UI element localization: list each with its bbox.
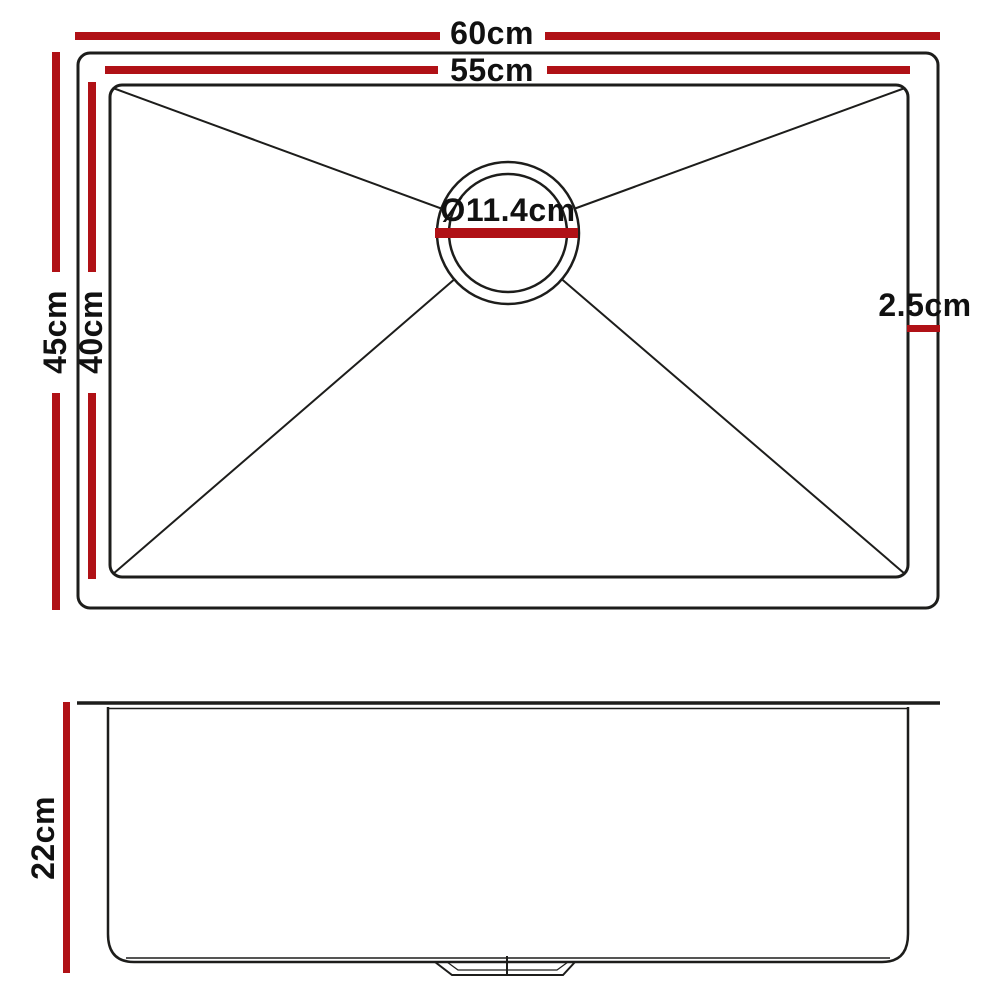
dimension-bar-45cm-bottom bbox=[52, 393, 60, 610]
dimension-label-outer-width: 60cm bbox=[450, 17, 534, 49]
sink-body-profile bbox=[108, 707, 908, 962]
dimension-bar-45cm-top bbox=[52, 52, 60, 272]
sink-inner-bowl bbox=[110, 85, 908, 577]
diagram-lineart bbox=[0, 0, 1000, 1000]
side-view bbox=[63, 702, 940, 975]
dimension-label-inner-depth: 40cm bbox=[75, 290, 107, 374]
dimension-bar-60cm-right bbox=[545, 32, 940, 40]
dimension-label-outer-depth: 45cm bbox=[39, 290, 71, 374]
sink-outer-rim bbox=[78, 53, 938, 608]
dimension-label-rim-offset: 2.5cm bbox=[878, 289, 971, 321]
dimension-bar-40cm-top bbox=[88, 82, 96, 272]
bowl-diagonal-bottom-left bbox=[113, 233, 508, 574]
dimension-bar-55cm-left bbox=[105, 66, 438, 74]
top-view bbox=[52, 32, 940, 610]
dimension-label-drain-diameter: Ø11.4cm bbox=[440, 194, 575, 226]
dimension-bar-drain-diameter bbox=[435, 228, 578, 238]
dimension-bar-60cm-left bbox=[75, 32, 440, 40]
dimension-bar-rim-offset bbox=[907, 325, 940, 332]
dimension-bar-40cm-bottom bbox=[88, 393, 96, 579]
sink-dimension-diagram: 60cm 55cm 45cm 40cm Ø11.4cm 2.5cm 22cm bbox=[0, 0, 1000, 1000]
bowl-diagonal-bottom-right bbox=[508, 233, 905, 574]
dimension-label-height: 22cm bbox=[27, 796, 59, 880]
dimension-bar-22cm bbox=[63, 702, 70, 973]
dimension-label-inner-width: 55cm bbox=[450, 54, 534, 86]
dimension-bar-55cm-right bbox=[547, 66, 910, 74]
